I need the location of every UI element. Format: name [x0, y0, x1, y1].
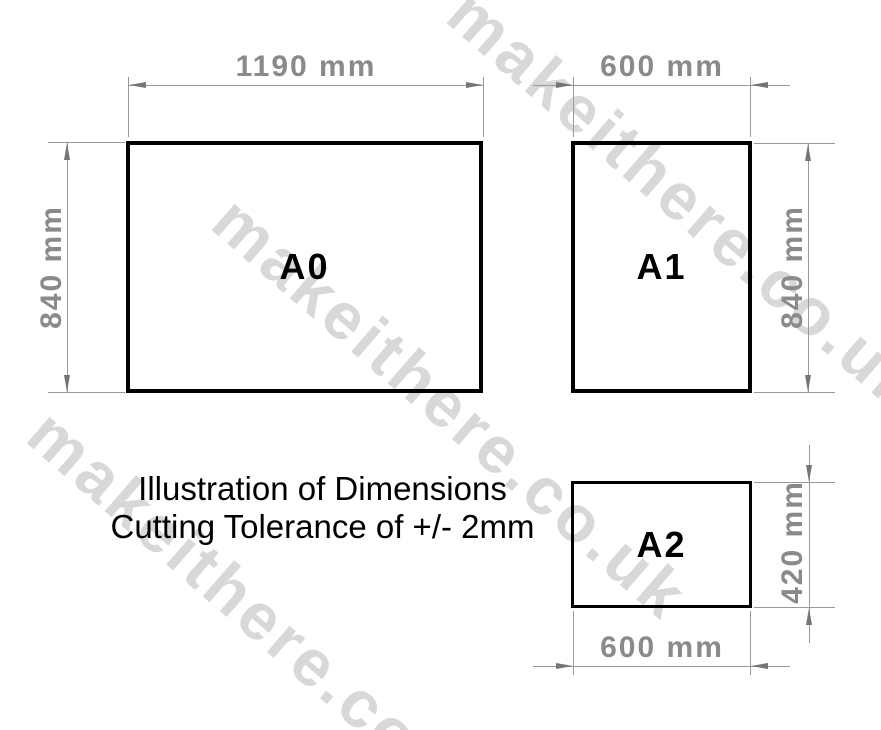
sheet-a0-label: A0	[279, 246, 329, 288]
a2-width-value: 600 mm	[573, 633, 751, 663]
arrowhead-left-icon	[751, 663, 768, 669]
a1-height-value: 840 mm	[778, 142, 808, 392]
caption-line-1: Illustration of Dimensions	[40, 470, 605, 508]
a0-height-extension-line-bottom	[48, 392, 125, 393]
sheet-a0-outline: A0	[126, 141, 483, 393]
arrowhead-left-icon	[751, 82, 768, 88]
caption: Illustration of Dimensions Cutting Toler…	[40, 470, 605, 546]
a1-width-extension-line-left	[573, 77, 574, 137]
arrowhead-right-icon	[556, 82, 573, 88]
a2-height-value: 420 mm	[778, 417, 808, 667]
arrowhead-left-icon	[129, 82, 146, 88]
arrowhead-right-icon	[466, 82, 483, 88]
sheet-a1-label: A1	[636, 246, 686, 288]
caption-line-2: Cutting Tolerance of +/- 2mm	[40, 508, 605, 546]
a1-height-extension-line-bottom	[754, 392, 835, 393]
a0-height-value: 840 mm	[37, 142, 67, 392]
dimensions-diagram: makeithere.co.uk makeithere.co.uk makeit…	[0, 0, 881, 730]
arrowhead-right-icon	[556, 663, 573, 669]
a0-width-extension-line-right	[483, 77, 484, 137]
sheet-a1-outline: A1	[571, 141, 752, 393]
a0-width-dimension-line	[128, 85, 484, 86]
sheet-a2-label: A2	[636, 524, 686, 566]
a1-width-value: 600 mm	[573, 52, 751, 82]
a0-width-value: 1190 mm	[128, 52, 484, 82]
